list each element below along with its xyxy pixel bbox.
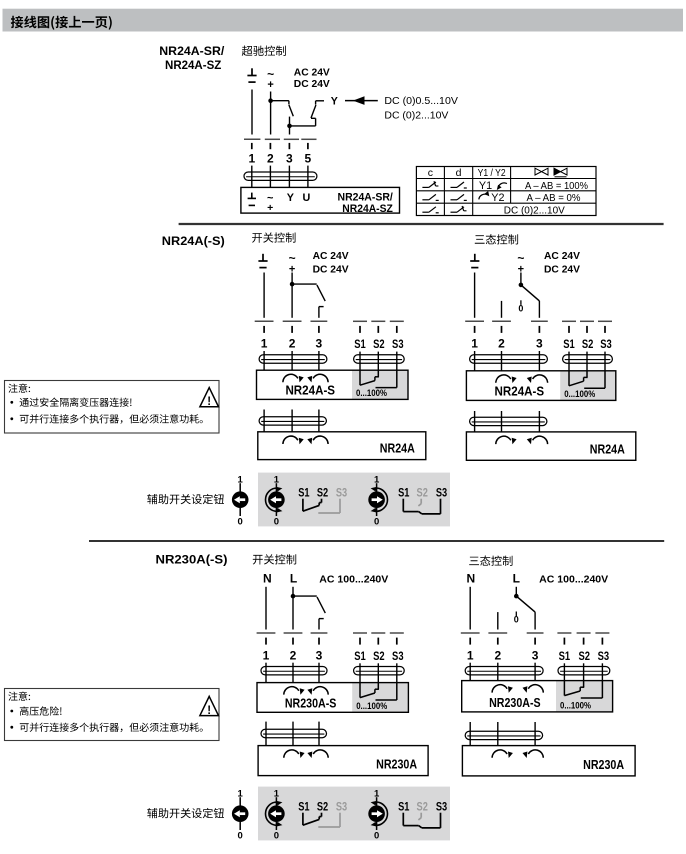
svg-text:Y2: Y2 (491, 192, 504, 204)
svg-text:S2: S2 (417, 802, 428, 814)
svg-text:0...100%: 0...100% (560, 701, 591, 711)
svg-text:NR230A(-S): NR230A(-S) (156, 553, 228, 567)
svg-text:DC 24V: DC 24V (294, 79, 330, 90)
svg-text:NR24A-SR/: NR24A-SR/ (338, 192, 393, 204)
svg-text:2: 2 (289, 337, 296, 351)
svg-text:NR230A-S: NR230A-S (489, 696, 541, 710)
svg-text:S2: S2 (373, 337, 385, 351)
svg-text:0: 0 (374, 830, 379, 841)
svg-text:DC 24V: DC 24V (313, 264, 349, 275)
svg-text:S1: S1 (398, 488, 410, 500)
svg-text:0: 0 (238, 830, 243, 841)
svg-text:S3: S3 (392, 337, 404, 351)
svg-text:NR24A-SZ: NR24A-SZ (342, 203, 393, 215)
svg-text:!: ! (207, 705, 211, 717)
svg-text:S3: S3 (436, 802, 447, 814)
svg-text:0: 0 (274, 516, 279, 527)
svg-text:S1: S1 (563, 337, 575, 351)
svg-text:S3: S3 (598, 649, 610, 663)
svg-text:S3: S3 (600, 337, 612, 351)
svg-text:+: + (267, 79, 273, 91)
svg-text:AC 100...240V: AC 100...240V (539, 575, 608, 586)
svg-text:0: 0 (238, 516, 243, 527)
svg-text:0...100%: 0...100% (356, 701, 387, 711)
svg-text:N: N (263, 572, 272, 586)
svg-text:NR24A-SR/: NR24A-SR/ (159, 44, 225, 58)
svg-text:NR230A: NR230A (376, 758, 417, 772)
svg-text:1: 1 (248, 152, 255, 166)
svg-text:+: + (267, 202, 273, 214)
svg-text:S1: S1 (398, 802, 410, 814)
svg-text:L: L (290, 572, 297, 586)
svg-text:S1: S1 (298, 488, 310, 500)
svg-text:0: 0 (374, 516, 379, 527)
svg-text:2: 2 (494, 648, 501, 662)
svg-text:1: 1 (471, 337, 478, 351)
svg-text:3: 3 (532, 648, 539, 662)
svg-text:NR24A(-S): NR24A(-S) (162, 234, 225, 248)
svg-text:0: 0 (518, 303, 523, 313)
svg-text:A – AB = 0%: A – AB = 0% (527, 192, 581, 204)
svg-text:!: ! (207, 396, 211, 408)
svg-text:AC 100...240V: AC 100...240V (319, 575, 388, 586)
svg-text:S2: S2 (417, 488, 428, 500)
svg-text:NR24A: NR24A (590, 442, 625, 456)
svg-text:NR24A-S: NR24A-S (495, 385, 545, 399)
svg-text:1: 1 (261, 337, 268, 351)
svg-text:S1: S1 (298, 802, 310, 814)
svg-text:NR24A: NR24A (380, 442, 415, 456)
svg-text:3: 3 (536, 337, 543, 351)
svg-text:0...100%: 0...100% (564, 389, 595, 399)
svg-text:1: 1 (263, 648, 270, 662)
svg-text:Y1: Y1 (479, 180, 492, 192)
svg-text:U: U (302, 192, 310, 204)
svg-text:DC (0)2...10V: DC (0)2...10V (504, 204, 565, 216)
svg-text:NR230A: NR230A (583, 758, 624, 772)
svg-text:S2: S2 (578, 649, 590, 663)
svg-text:DC 24V: DC 24V (544, 264, 580, 275)
svg-text:Y1 / Y2: Y1 / Y2 (478, 167, 506, 179)
svg-text:S3: S3 (336, 488, 347, 500)
svg-text:S1: S1 (354, 649, 366, 663)
svg-text:N: N (466, 572, 475, 586)
svg-text:AC 24V: AC 24V (294, 67, 330, 78)
svg-text:S2: S2 (582, 337, 594, 351)
svg-text:0: 0 (514, 615, 519, 625)
svg-text:S3: S3 (436, 488, 447, 500)
svg-text:2: 2 (267, 152, 274, 166)
svg-text:NR24A-SZ: NR24A-SZ (165, 58, 221, 72)
svg-text:S2: S2 (317, 488, 328, 500)
svg-text:S2: S2 (317, 802, 328, 814)
svg-text:0: 0 (274, 830, 279, 841)
svg-text:d: d (456, 167, 462, 179)
svg-text:NR24A-S: NR24A-S (285, 384, 335, 398)
svg-text:3: 3 (316, 337, 323, 351)
svg-text:S3: S3 (336, 802, 347, 814)
svg-text:S1: S1 (354, 337, 366, 351)
svg-text:3: 3 (316, 648, 323, 662)
svg-text:DC (0)0.5...10V: DC (0)0.5...10V (384, 96, 458, 107)
svg-text:2: 2 (290, 648, 297, 662)
svg-text:NR230A-S: NR230A-S (285, 697, 337, 711)
svg-text:3: 3 (286, 152, 293, 166)
svg-text:5: 5 (305, 152, 312, 166)
svg-text:AC 24V: AC 24V (544, 251, 580, 262)
svg-text:AC 24V: AC 24V (313, 251, 349, 262)
svg-text:L: L (513, 572, 520, 586)
svg-text:Y: Y (331, 95, 338, 107)
svg-text:S2: S2 (373, 649, 385, 663)
svg-text:S1: S1 (559, 649, 571, 663)
svg-text:c: c (428, 167, 433, 179)
svg-text:S3: S3 (392, 649, 404, 663)
svg-text:DC (0)2...10V: DC (0)2...10V (384, 110, 448, 121)
svg-text:A – AB = 100%: A – AB = 100% (525, 180, 588, 192)
svg-text:Y: Y (287, 192, 295, 204)
svg-text:2: 2 (498, 337, 505, 351)
svg-text:1: 1 (467, 648, 474, 662)
svg-text:0...100%: 0...100% (356, 388, 387, 398)
